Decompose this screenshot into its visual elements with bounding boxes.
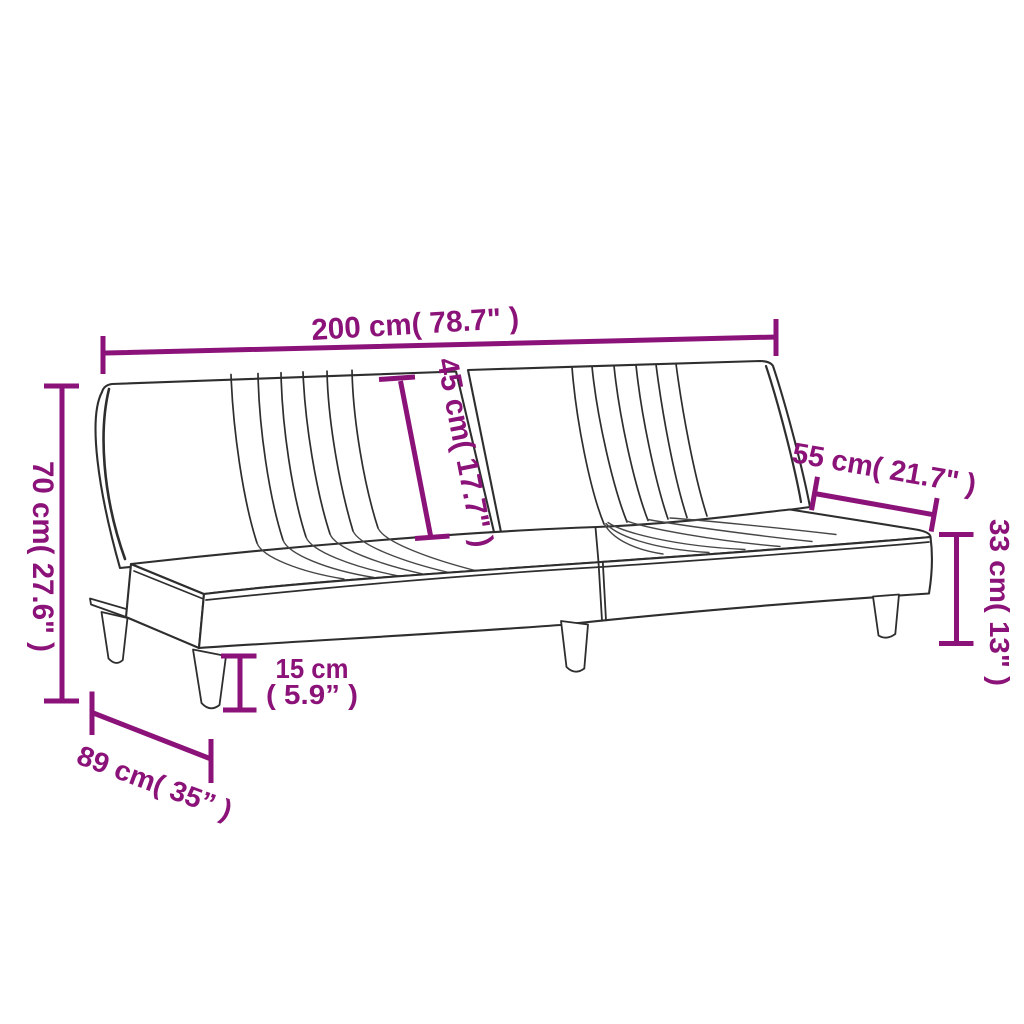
svg-text:200 cm( 78.7" ): 200 cm( 78.7" ): [310, 302, 520, 347]
svg-text:70 cm( 27.6" ): 70 cm( 27.6" ): [26, 461, 59, 652]
svg-text:( 5.9” ): ( 5.9” ): [266, 679, 358, 710]
svg-text:33 cm( 13" ): 33 cm( 13" ): [984, 519, 1015, 686]
